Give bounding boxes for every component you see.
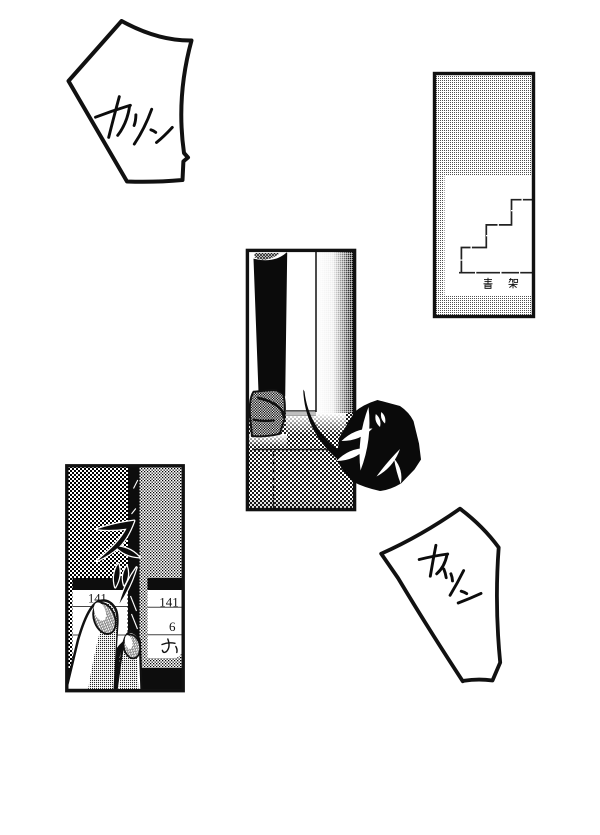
svg-text:141: 141 <box>159 594 179 609</box>
svg-text:6: 6 <box>169 619 176 634</box>
